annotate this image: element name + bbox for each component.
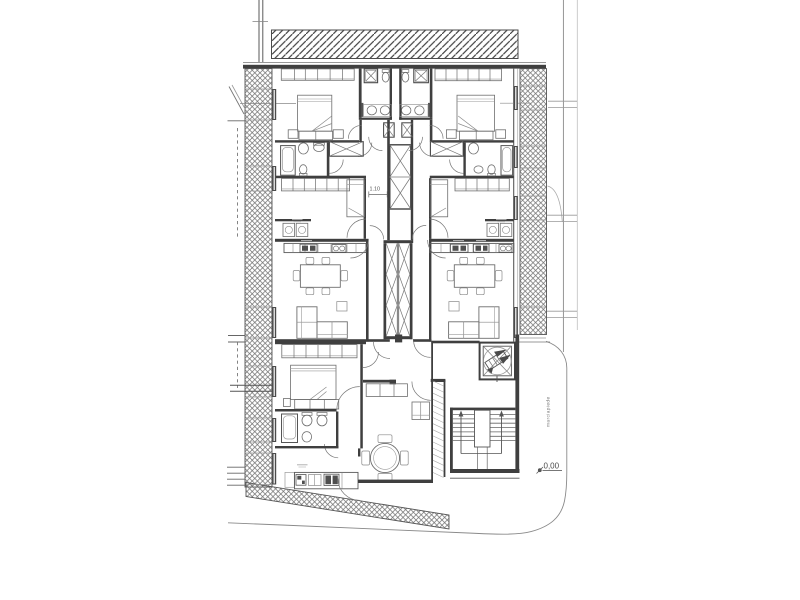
svg-text:1.10: 1.10: [370, 187, 381, 193]
svg-text:0,00: 0,00: [544, 461, 560, 470]
svg-text:marciapiede: marciapiede: [546, 396, 552, 427]
